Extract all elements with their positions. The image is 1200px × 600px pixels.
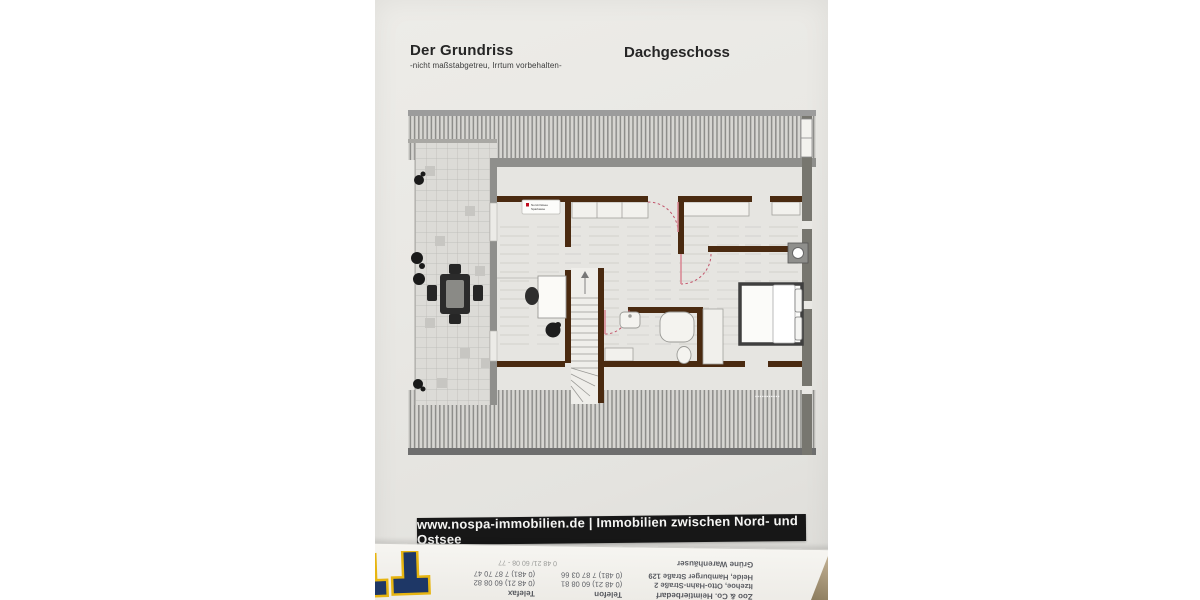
right-wall-gap-1 bbox=[802, 221, 812, 229]
reverse-fax-label: Telefax bbox=[473, 587, 534, 598]
photo-of-floorplan-page: Der Grundriss -nicht maßstabgetreu, Irrt… bbox=[0, 0, 1200, 600]
paper-sheet: Der Grundriss -nicht maßstabgetreu, Irrt… bbox=[375, 0, 828, 600]
terrace-top-bar bbox=[408, 139, 497, 143]
terrace-wall-window-1 bbox=[490, 203, 497, 241]
floorplan-svg: Nord-Ostsee Sparkasse bbox=[405, 106, 816, 458]
top-wall-gray bbox=[490, 158, 816, 167]
terrace-wall-window-2 bbox=[490, 331, 497, 361]
reverse-tagline: Grüne Warenhäuser bbox=[677, 559, 753, 569]
bed bbox=[740, 284, 802, 344]
sparkasse-label: Nord-Ostsee Sparkasse bbox=[522, 200, 560, 214]
reverse-phone-2: (0 481) 7 87 03 66 bbox=[561, 570, 622, 580]
toilet bbox=[677, 347, 691, 364]
reverse-fax-block: Telefax (0 48 21) 60 08 82 (0 481) 7 87 … bbox=[473, 568, 535, 598]
reverse-phone-label: Telefon bbox=[561, 588, 622, 599]
reverse-phone-block: Telefon (0 48 21) 60 08 81 (0 481) 7 87 … bbox=[561, 570, 623, 600]
shower bbox=[660, 312, 694, 342]
bed-pillow-2 bbox=[795, 317, 802, 340]
logo-letter-t-right bbox=[391, 551, 429, 595]
watermark-text: ▪▪▪▪▪▪▪▪▪▪▪ bbox=[755, 394, 780, 400]
floor-label: Dachgeschoss bbox=[624, 44, 730, 61]
reverse-address-2: Heide, Hamburger Straße 129 bbox=[648, 571, 753, 582]
website-banner-text: www.nospa-immobilien.de | Immobilien zwi… bbox=[417, 512, 806, 546]
reverse-fax-2: (0 481) 7 87 70 47 bbox=[474, 568, 535, 578]
page-subtitle: -nicht maßstabgetreu, Irrtum vorbehalten… bbox=[410, 61, 562, 70]
floorplan-drawing: Nord-Ostsee Sparkasse bbox=[405, 106, 816, 458]
bed-pillow-1 bbox=[795, 289, 802, 312]
page-title: Der Grundriss bbox=[410, 42, 562, 59]
right-wall-gap-3 bbox=[802, 386, 812, 394]
reverse-phone-1: (0 48 21) 60 08 81 bbox=[561, 579, 622, 589]
title-block: Der Grundriss -nicht maßstabgetreu, Irrt… bbox=[410, 42, 562, 70]
roof-band-top-edge bbox=[408, 110, 816, 116]
reverse-company-name: Zoo & Co. Heimtierbedarf bbox=[648, 590, 753, 600]
reverse-partial-number: 0 48 21/ 60 08 - 77 bbox=[498, 557, 557, 567]
roof-band-bottom-edge bbox=[408, 448, 816, 455]
chimney bbox=[788, 243, 808, 263]
wardrobe bbox=[703, 309, 723, 364]
office-chair bbox=[525, 287, 539, 305]
flipped-brand-logo bbox=[375, 551, 445, 600]
flipped-brand-logo-svg bbox=[375, 551, 445, 600]
terrace-wall bbox=[490, 158, 497, 405]
reverse-company-block: Zoo & Co. Heimtierbedarf Itzehoe, Otto-H… bbox=[648, 571, 753, 600]
reverse-fax-1: (0 48 21) 60 08 82 bbox=[474, 578, 535, 588]
reverse-address-1: Itzehoe, Otto-Hahn-Straße 2 bbox=[648, 580, 753, 591]
sparkasse-label-line2: Sparkasse bbox=[531, 207, 546, 211]
website-banner: www.nospa-immobilien.de | Immobilien zwi… bbox=[417, 514, 806, 545]
logo-letter-t-left bbox=[375, 554, 388, 597]
staircase bbox=[571, 268, 598, 404]
bed-duvet bbox=[773, 285, 795, 343]
sparkasse-logo-mark bbox=[526, 203, 529, 207]
